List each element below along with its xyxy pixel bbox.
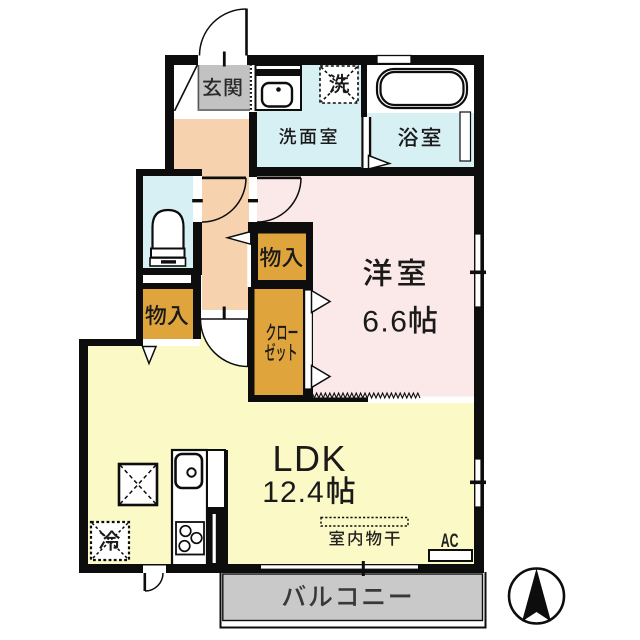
svg-text:6.6: 6.6 (362, 305, 408, 338)
svg-text:AC: AC (441, 530, 459, 552)
svg-text:12.4: 12.4 (262, 476, 324, 509)
svg-text:LDK: LDK (273, 438, 348, 479)
